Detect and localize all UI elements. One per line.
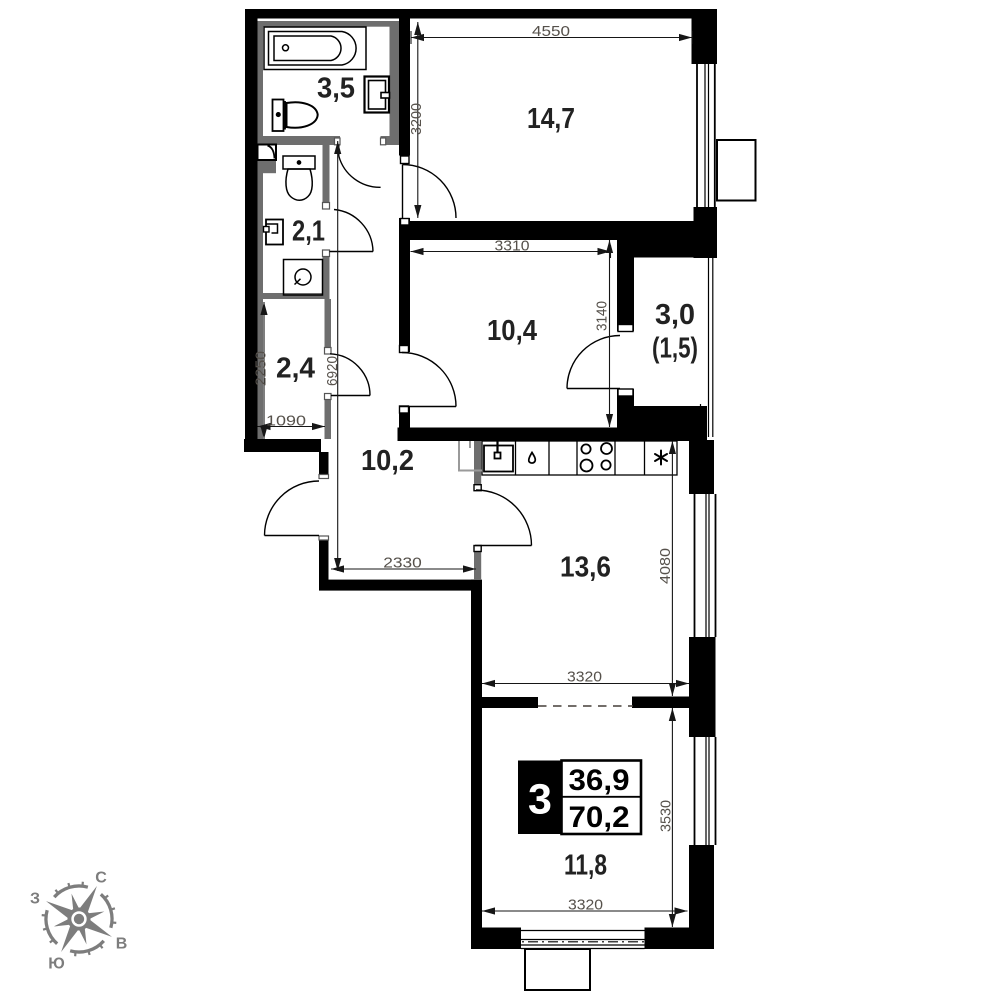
svg-text:6920: 6920 bbox=[324, 356, 341, 386]
svg-text:3310: 3310 bbox=[495, 238, 530, 255]
svg-text:3320: 3320 bbox=[568, 897, 603, 914]
svg-text:10,4: 10,4 bbox=[487, 315, 537, 347]
svg-text:2,4: 2,4 bbox=[276, 353, 315, 385]
svg-text:2250: 2250 bbox=[253, 351, 270, 386]
svg-text:70,2: 70,2 bbox=[569, 801, 630, 834]
svg-text:1090: 1090 bbox=[266, 413, 306, 430]
svg-text:14,7: 14,7 bbox=[527, 103, 575, 135]
svg-text:10,2: 10,2 bbox=[361, 445, 414, 477]
svg-text:3320: 3320 bbox=[567, 669, 602, 686]
svg-text:3: 3 bbox=[528, 776, 552, 824]
svg-text:В: В bbox=[116, 936, 128, 953]
svg-text:36,9: 36,9 bbox=[569, 764, 630, 797]
svg-text:3530: 3530 bbox=[658, 800, 675, 832]
svg-text:С: С bbox=[95, 870, 107, 887]
svg-text:13,6: 13,6 bbox=[560, 552, 611, 584]
svg-text:2,1: 2,1 bbox=[292, 216, 325, 248]
svg-text:4550: 4550 bbox=[532, 23, 570, 40]
svg-text:Ю: Ю bbox=[48, 956, 65, 973]
svg-text:З: З bbox=[30, 891, 40, 908]
svg-text:4080: 4080 bbox=[657, 548, 674, 584]
svg-text:(1,5): (1,5) bbox=[652, 333, 698, 365]
svg-text:3140: 3140 bbox=[594, 301, 611, 331]
svg-text:3,5: 3,5 bbox=[317, 73, 355, 105]
svg-text:11,8: 11,8 bbox=[564, 850, 607, 882]
svg-text:3200: 3200 bbox=[408, 103, 425, 135]
svg-text:3,0: 3,0 bbox=[655, 299, 695, 331]
svg-text:2330: 2330 bbox=[383, 555, 422, 572]
